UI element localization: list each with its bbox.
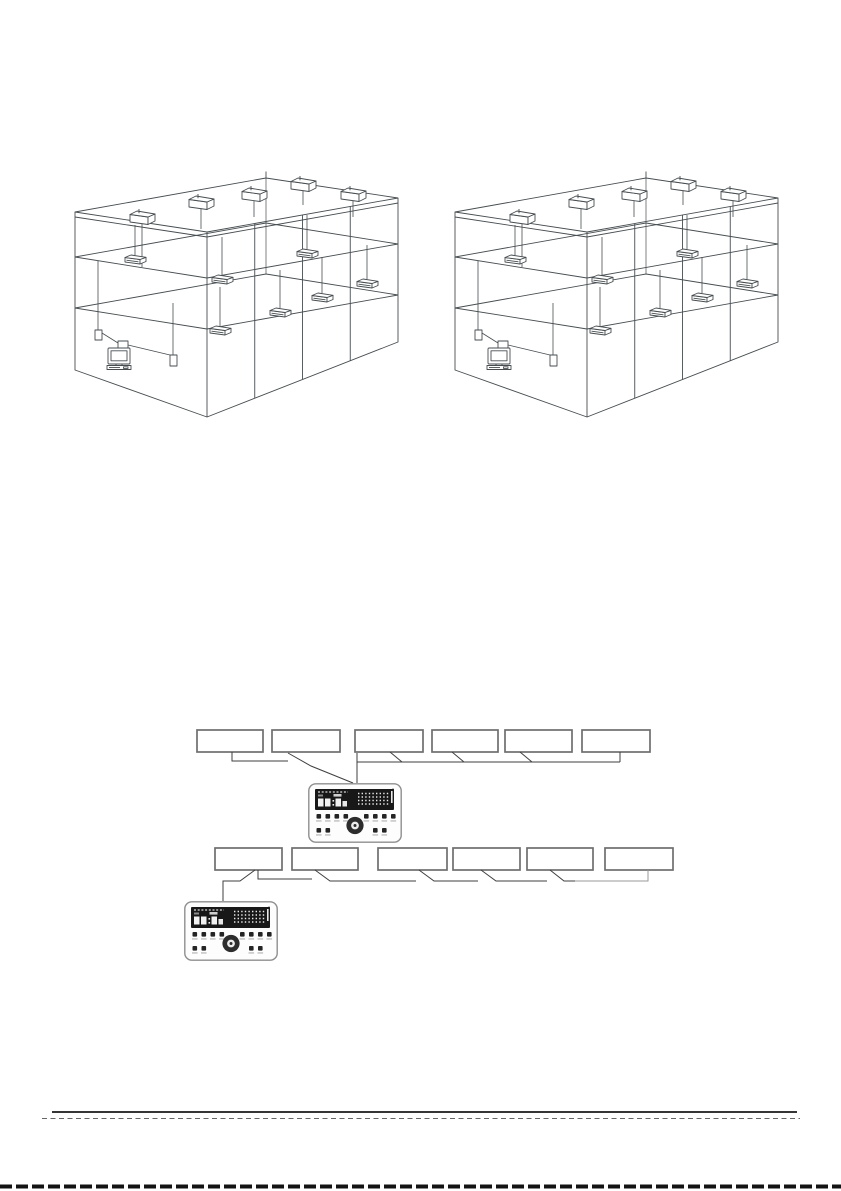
remote-controller-2 xyxy=(185,902,277,960)
callout-box xyxy=(378,848,447,870)
callout-box xyxy=(197,730,263,752)
page-canvas xyxy=(0,0,841,1191)
building-diagram-left xyxy=(75,172,398,418)
callout-box xyxy=(355,730,423,752)
callout-box xyxy=(527,848,593,870)
callout-boxes-row1 xyxy=(197,730,650,752)
remote-controller-1 xyxy=(309,784,401,842)
callout-box xyxy=(292,848,358,870)
callout-box xyxy=(215,848,282,870)
callout-box xyxy=(605,848,673,870)
manual-page xyxy=(0,0,841,1191)
leader-lines-row1 xyxy=(232,752,620,783)
callout-box xyxy=(453,848,520,870)
callout-box xyxy=(432,730,498,752)
callout-box xyxy=(272,730,340,752)
callout-boxes-row2 xyxy=(215,848,673,870)
callout-box xyxy=(582,730,650,752)
controller-callout-top xyxy=(197,730,650,842)
leader-lines-row2 xyxy=(223,870,648,901)
building-diagram-right xyxy=(455,172,778,418)
controller-callout-bottom xyxy=(185,848,673,960)
callout-box xyxy=(505,730,572,752)
